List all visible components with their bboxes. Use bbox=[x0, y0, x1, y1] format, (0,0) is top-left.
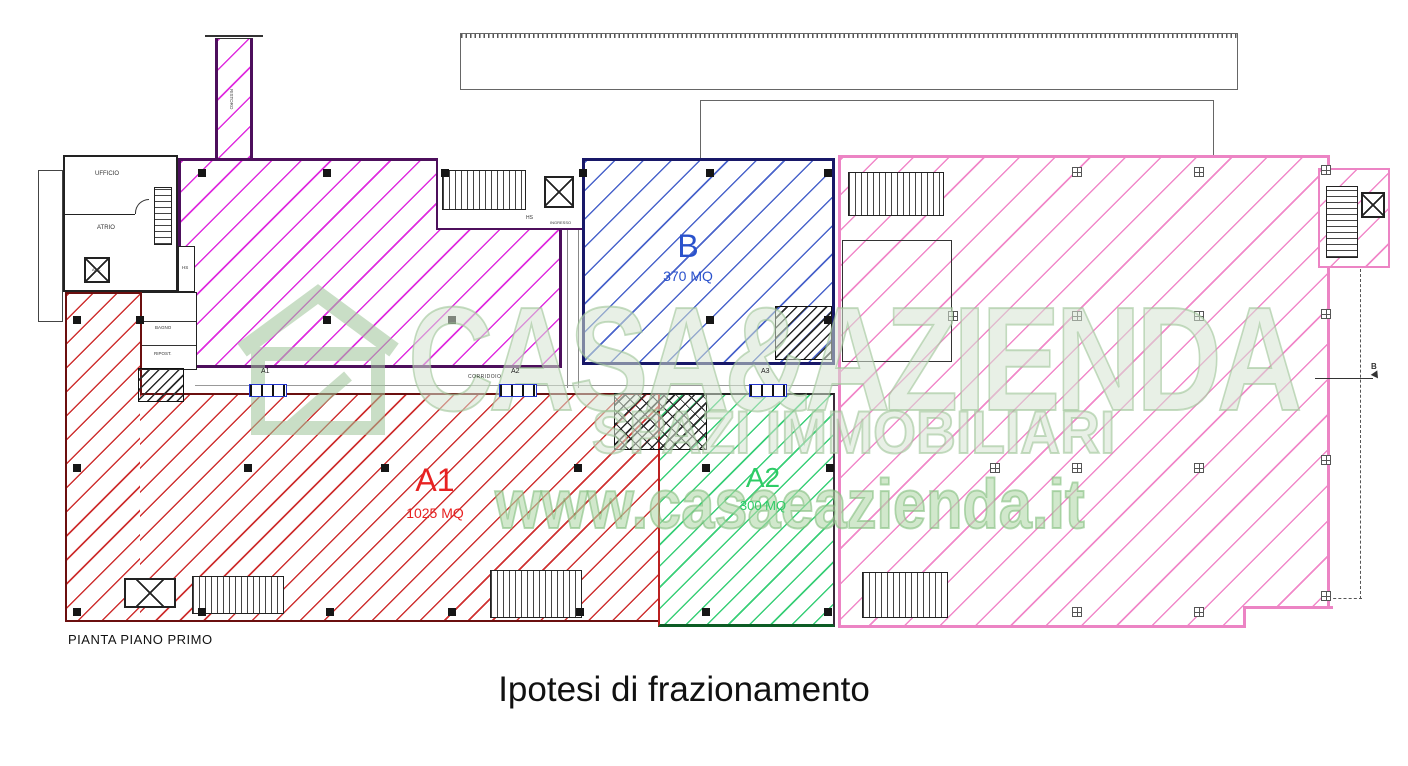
room-divider bbox=[65, 214, 135, 215]
column-marker bbox=[576, 608, 584, 616]
column-marker-crosshair bbox=[1194, 167, 1204, 177]
zone-right-wing bbox=[838, 155, 1330, 628]
column-marker bbox=[824, 316, 832, 324]
section-label: B bbox=[1371, 362, 1377, 371]
column-marker-crosshair bbox=[1072, 607, 1082, 617]
column-marker-crosshair bbox=[1072, 167, 1082, 177]
column-marker bbox=[323, 169, 331, 177]
zone-a1-label: A1 bbox=[385, 462, 485, 499]
zone-a1-area: 1025 MQ bbox=[375, 505, 495, 521]
column-marker bbox=[702, 608, 710, 616]
hs-label: HS bbox=[182, 265, 188, 270]
column-marker-crosshair bbox=[1321, 309, 1331, 319]
section-dashed-line bbox=[1360, 269, 1361, 599]
door-arc bbox=[135, 199, 149, 214]
stairs-a1-bottom-right bbox=[490, 570, 582, 618]
zone-a2-label: A2 bbox=[718, 462, 808, 494]
elevator-a1-bottom bbox=[124, 578, 176, 608]
column-marker-crosshair bbox=[1321, 455, 1331, 465]
column-marker bbox=[702, 464, 710, 472]
column-marker-crosshair bbox=[990, 463, 1000, 473]
column-marker bbox=[448, 316, 456, 324]
zone-b-label: B bbox=[648, 228, 728, 265]
column-marker bbox=[574, 464, 582, 472]
column-marker-crosshair bbox=[1321, 165, 1331, 175]
column-marker-crosshair bbox=[1194, 311, 1204, 321]
column-marker bbox=[826, 464, 834, 472]
column-marker bbox=[441, 169, 449, 177]
stairs-right-bottom-block bbox=[862, 572, 948, 618]
stairs-right-top-block bbox=[848, 172, 944, 216]
column-marker bbox=[136, 316, 144, 324]
bagno-label: BAGNO bbox=[155, 325, 171, 330]
column-marker bbox=[323, 316, 331, 324]
ingresso-label: INGRESSO bbox=[550, 220, 571, 225]
room-divider bbox=[141, 345, 196, 346]
column-marker bbox=[73, 464, 81, 472]
right-stair-annex bbox=[1318, 168, 1390, 268]
zone-a2-area: 300 MQ bbox=[713, 498, 813, 513]
shaft-zone-b bbox=[775, 306, 832, 360]
stairs-left-block bbox=[154, 187, 172, 245]
corridoio-label: CORRIDOIO bbox=[468, 374, 501, 380]
column-marker bbox=[198, 608, 206, 616]
room-divider bbox=[141, 321, 196, 322]
elevator-center bbox=[544, 176, 574, 208]
zone-magenta-stair-notch: HS INGRESSO bbox=[436, 158, 582, 230]
ufficio-label: UFFICIO bbox=[95, 171, 119, 177]
zone-b-area: 370 MQ bbox=[638, 268, 738, 284]
door-a1-label: A1 bbox=[261, 368, 270, 375]
column-marker bbox=[706, 316, 714, 324]
column-marker bbox=[824, 608, 832, 616]
shaft-left bbox=[138, 368, 184, 402]
stairs-annex-block bbox=[1326, 186, 1358, 258]
zone-right-bottom-step bbox=[1243, 606, 1333, 628]
column-marker bbox=[579, 169, 587, 177]
tube-cap-line bbox=[205, 35, 263, 37]
column-marker bbox=[198, 169, 206, 177]
plan-caption: PIANTA PIANO PRIMO bbox=[68, 632, 213, 647]
section-dashed-line-bottom bbox=[1328, 598, 1362, 599]
column-marker-crosshair bbox=[948, 311, 958, 321]
asc-label: ASC. bbox=[92, 267, 101, 272]
column-marker-crosshair bbox=[1072, 463, 1082, 473]
column-marker bbox=[73, 608, 81, 616]
atrio-label: ATRIO bbox=[97, 225, 115, 231]
column-marker-crosshair bbox=[1194, 607, 1204, 617]
column-marker-crosshair bbox=[1194, 463, 1204, 473]
hs-label-2: HS bbox=[526, 215, 533, 221]
roof-outline-lower bbox=[700, 100, 1214, 158]
shaft-a1-a2 bbox=[614, 393, 707, 450]
roof-outline-upper bbox=[460, 33, 1238, 90]
column-marker bbox=[73, 316, 81, 324]
column-marker-crosshair bbox=[1321, 591, 1331, 601]
page-title: Ipotesi di frazionamento bbox=[354, 670, 1014, 710]
column-marker bbox=[824, 169, 832, 177]
bathroom-block: BAGNO RIPOST. bbox=[140, 292, 197, 370]
left-rooms-block: UFFICIO ATRIO ASC. bbox=[63, 155, 178, 292]
door-a2-label: A2 bbox=[511, 368, 520, 375]
column-marker bbox=[706, 169, 714, 177]
column-marker bbox=[326, 608, 334, 616]
column-marker-crosshair bbox=[1072, 311, 1082, 321]
elevator-right bbox=[1361, 192, 1385, 218]
ripost-label: RIPOST. bbox=[154, 351, 172, 356]
left-wing-annex bbox=[38, 170, 63, 322]
section-line bbox=[1315, 378, 1373, 379]
column-marker bbox=[244, 464, 252, 472]
door-a3 bbox=[749, 384, 787, 397]
door-a3-label: A3 bbox=[761, 368, 770, 375]
floor-plan-canvas: RISTORO UFFICIO ATRIO ASC. HS BAGNO RIPO… bbox=[0, 0, 1408, 766]
section-arrow bbox=[1371, 370, 1382, 380]
ristoro-label: RISTORO bbox=[229, 89, 234, 109]
column-marker bbox=[448, 608, 456, 616]
door-a1 bbox=[249, 384, 287, 397]
hs-room: HS bbox=[178, 246, 195, 292]
zone-a1-left-strip bbox=[65, 292, 140, 622]
double-height-outline bbox=[842, 240, 952, 362]
door-a2 bbox=[499, 384, 537, 397]
stairs-center-block bbox=[442, 170, 526, 210]
ristoro-corridor: RISTORO bbox=[215, 38, 253, 160]
